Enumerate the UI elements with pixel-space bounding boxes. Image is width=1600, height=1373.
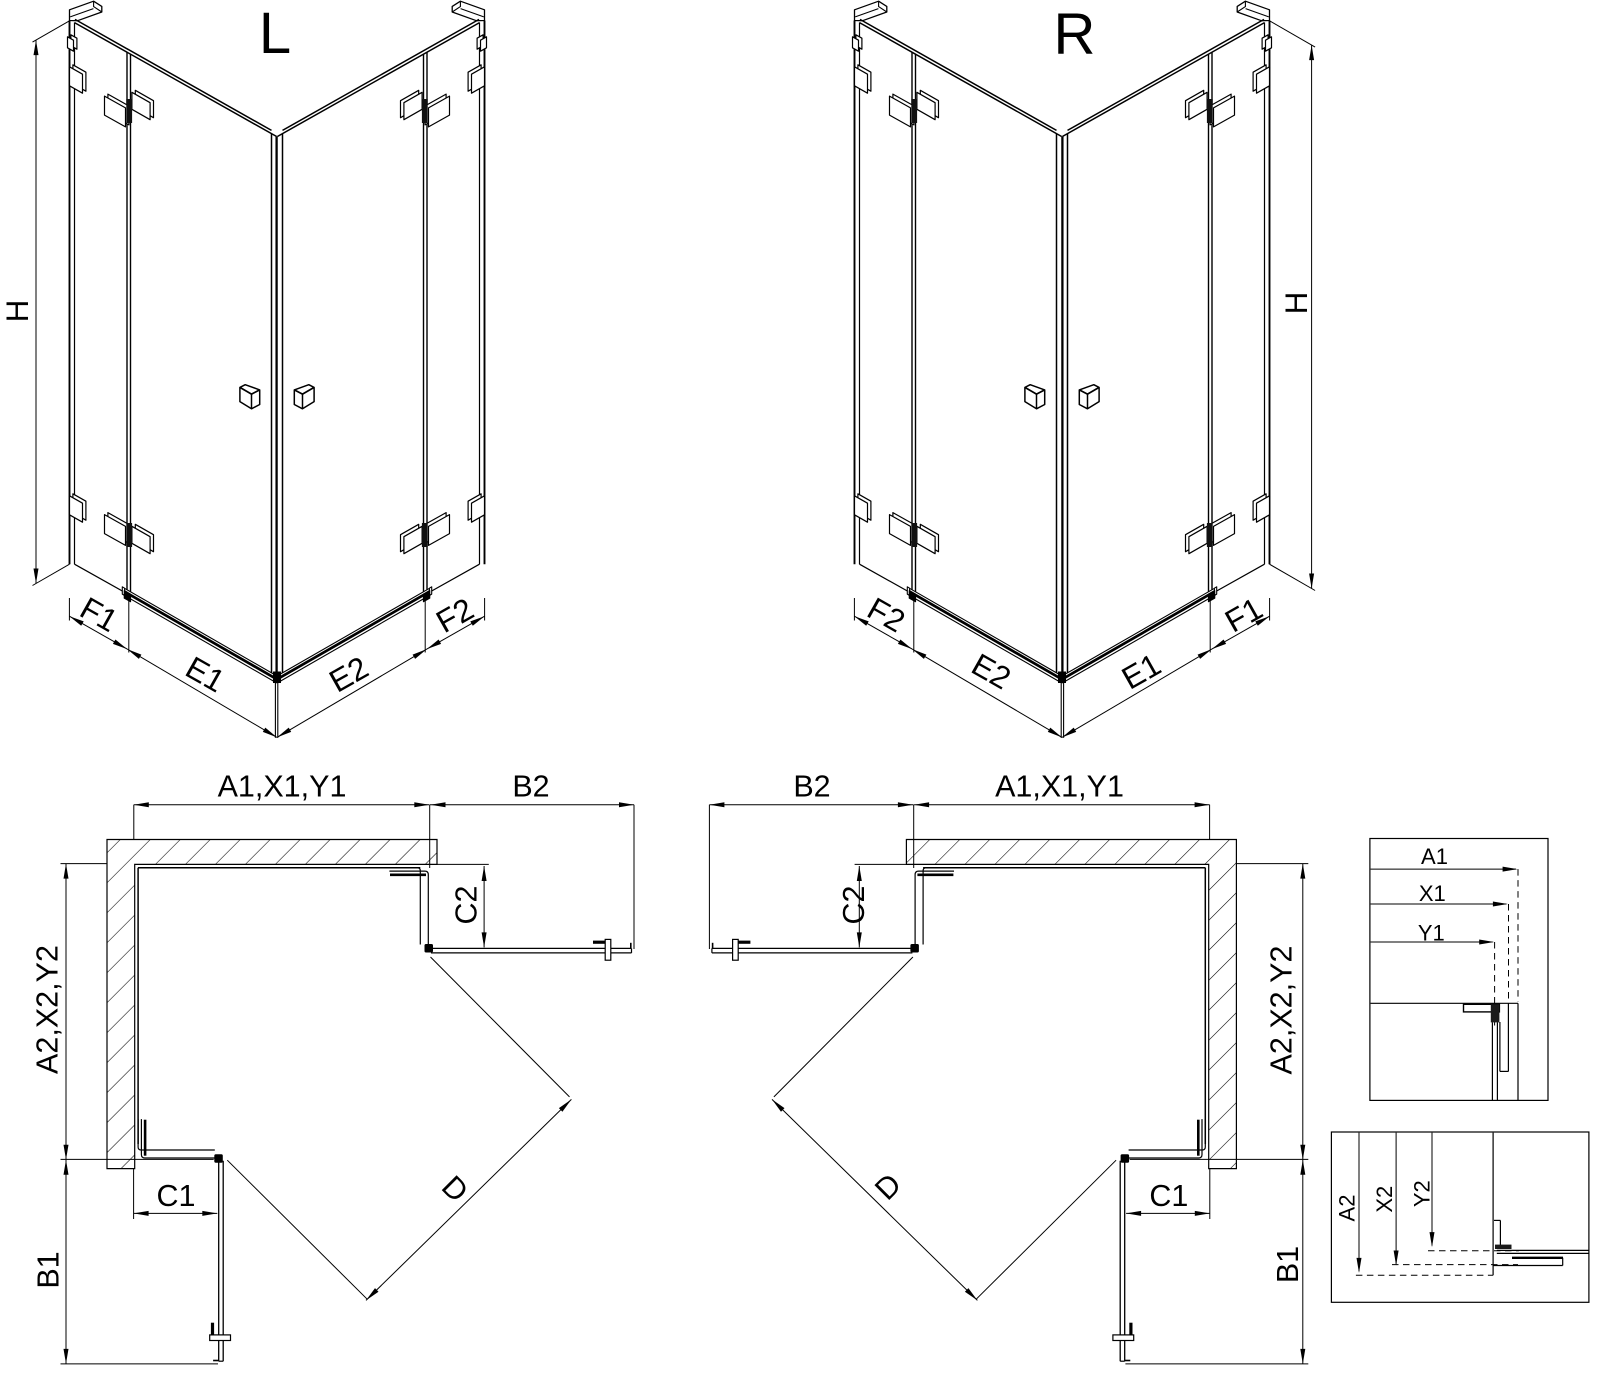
svg-text:Y2: Y2 bbox=[1410, 1180, 1435, 1207]
svg-text:A1,X1,Y1: A1,X1,Y1 bbox=[995, 769, 1124, 803]
svg-text:A2,X2,Y2: A2,X2,Y2 bbox=[30, 945, 64, 1074]
svg-text:Y1: Y1 bbox=[1418, 920, 1445, 945]
svg-text:X1: X1 bbox=[1419, 881, 1446, 906]
svg-text:X2: X2 bbox=[1372, 1186, 1397, 1213]
svg-text:B1: B1 bbox=[1271, 1246, 1305, 1283]
svg-text:L: L bbox=[259, 1, 291, 66]
svg-text:B1: B1 bbox=[31, 1251, 65, 1288]
svg-text:H: H bbox=[0, 300, 35, 323]
svg-text:C1: C1 bbox=[157, 1179, 196, 1213]
svg-text:A1: A1 bbox=[1421, 844, 1448, 869]
svg-text:C1: C1 bbox=[1149, 1179, 1188, 1213]
svg-text:B2: B2 bbox=[512, 769, 549, 803]
svg-text:A2,X2,Y2: A2,X2,Y2 bbox=[1264, 946, 1298, 1075]
svg-text:C2: C2 bbox=[837, 886, 871, 925]
svg-text:A1,X1,Y1: A1,X1,Y1 bbox=[218, 769, 347, 803]
svg-text:B2: B2 bbox=[793, 769, 830, 803]
svg-text:C2: C2 bbox=[449, 886, 483, 925]
svg-text:R: R bbox=[1054, 2, 1096, 67]
svg-text:A2: A2 bbox=[1335, 1195, 1360, 1222]
svg-text:H: H bbox=[1278, 292, 1314, 315]
